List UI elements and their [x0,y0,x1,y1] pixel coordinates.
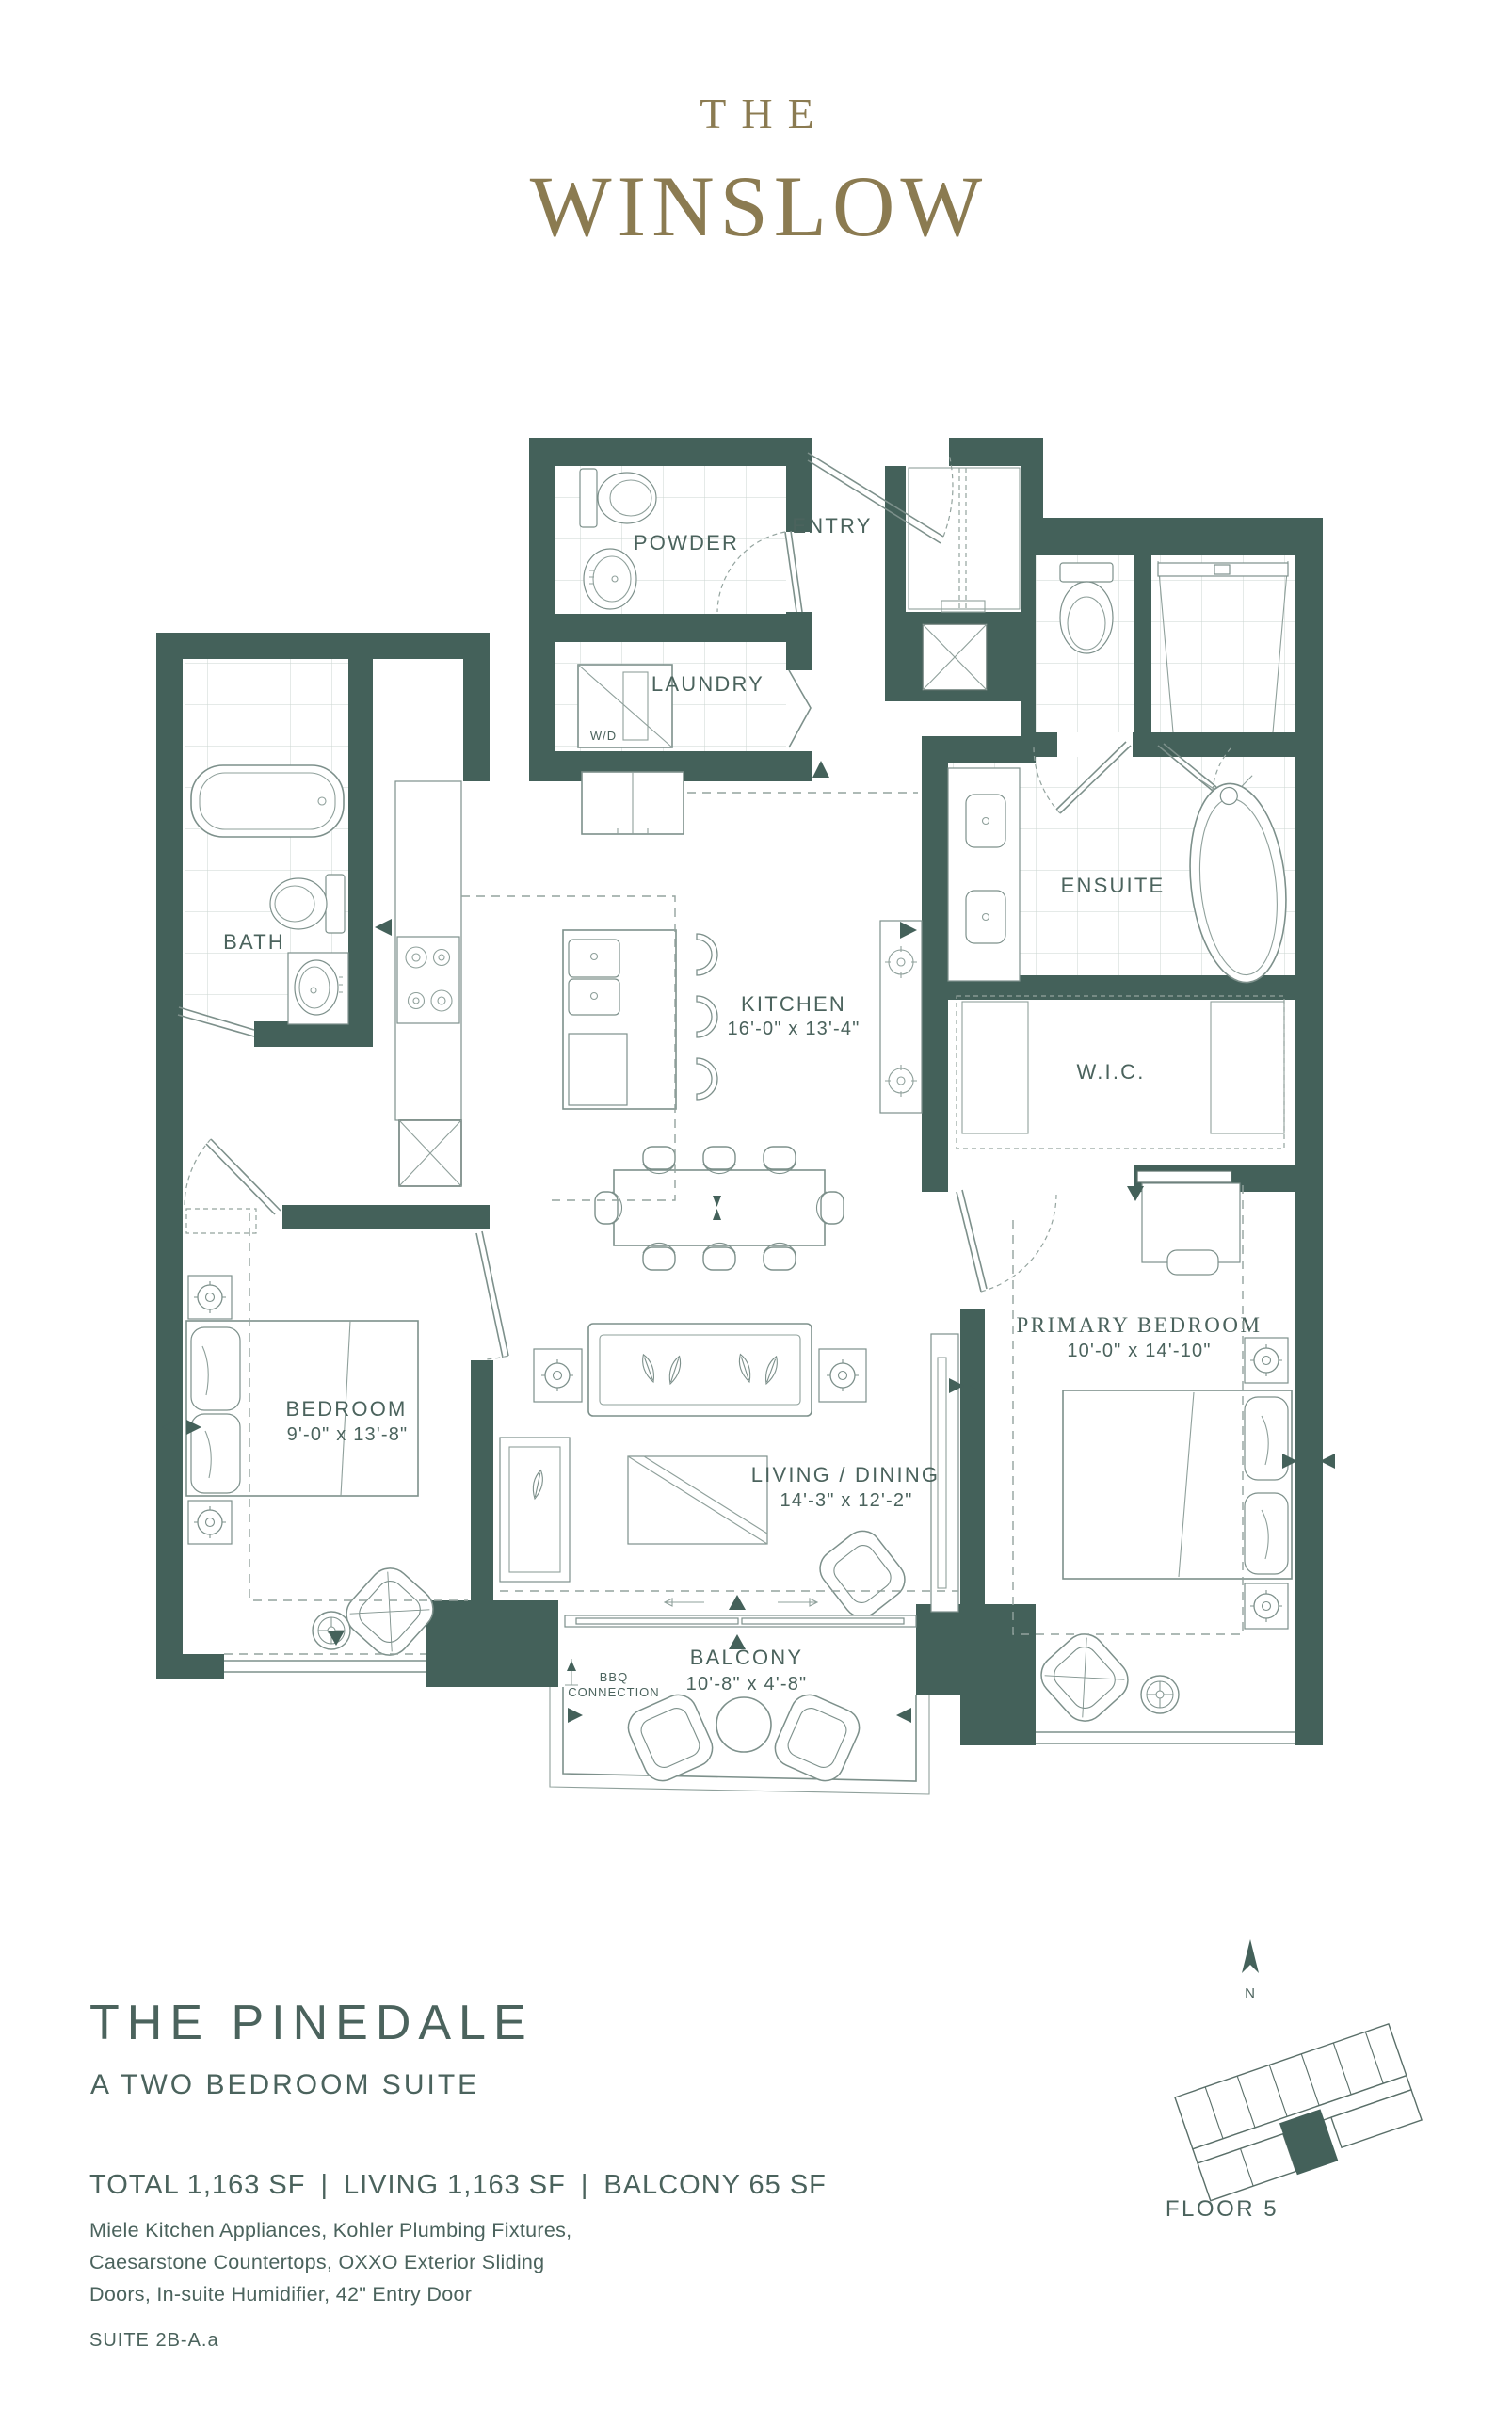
north-label: N [1245,1985,1256,2001]
bath-sink-icon [288,953,348,1024]
dining-chair [595,1192,622,1224]
entry-closet [909,468,1020,612]
primary-label: PRIMARY BEDROOM [1017,1313,1263,1337]
room-primary-bedroom: PRIMARY BEDROOM 10'-0" x 14'-10" [476,1179,1292,1729]
brand-logo: THE WINSLOW [530,89,989,254]
features-line-2: Caesarstone Countertops, OXXO Exterior S… [89,2251,544,2273]
dining-chair [643,1147,675,1174]
wic-slider-panel [1137,1171,1231,1182]
north-arrow: N [1242,1939,1259,2001]
side-table [534,1349,582,1402]
primary-window [1036,1728,1295,1747]
kitchen-label: KITCHEN [741,992,846,1016]
ensuite-toilet-icon [1060,563,1113,653]
wic-closet-right [1211,1002,1284,1133]
primary-bed-icon [1063,1390,1292,1579]
primary-lounge-chair [1033,1626,1136,1729]
laundry-label: LAUNDRY [651,672,764,696]
bedroom-door [185,1139,281,1214]
bedroom2-living-door [476,1231,508,1359]
bedroom-dims: 9'-0" x 13'-8" [287,1424,409,1445]
coffee-table-icon [628,1456,767,1544]
primary-nightstand [1245,1338,1288,1383]
balcony-table [716,1697,771,1752]
suite-areas: TOTAL 1,163 SF|LIVING 1,163 SF|BALCONY 6… [89,2170,827,2200]
suite-name: THE PINEDALE [89,1996,534,2050]
balcony-label: BALCONY [690,1646,804,1669]
balcony-dims: 10'-8" x 4'-8" [686,1674,808,1695]
primary-dims: 10'-0" x 14'-10" [1067,1341,1211,1361]
bar-stool [697,934,717,975]
living-armchair [812,1523,912,1624]
powder-toilet-icon [580,469,656,527]
dining-chair [703,1243,735,1270]
wic-label: W.I.C. [1076,1060,1145,1084]
dining-chair [764,1243,796,1270]
dining-chair [816,1192,844,1224]
kitchen-island [563,930,676,1109]
footer-details: THE PINEDALE A TWO BEDROOM SUITE TOTAL 1… [89,1996,827,2351]
bbq-label-line1: BBQ [600,1670,628,1684]
primary-desk-icon [1142,1183,1240,1275]
powder-label: POWDER [634,531,739,554]
primary-nightstand [1245,1583,1288,1629]
bath-toilet-icon [270,875,345,933]
bar-stool [697,1058,717,1100]
sofa-icon [588,1324,812,1416]
dining-chair [643,1243,675,1270]
bath-label: BATH [223,930,285,954]
fridge-icon [582,772,684,834]
tall-cabinets-icon [880,921,922,1113]
living-dims: 14'-3" x 12'-2" [780,1490,912,1511]
room-kitchen: KITCHEN 16'-0" x 13'-4" [395,772,922,1270]
ensuite-vanity [948,768,1020,981]
bbq-label-line2: CONNECTION [568,1685,659,1699]
washer-dryer-label: W/D [590,729,617,743]
balcony-chair [622,1689,718,1787]
room-balcony: BALCONY 10'-8" x 4'-8" BBQ CONNECTION [550,1646,929,1794]
cooktop-icon [397,937,459,1023]
bbq-connection-note: BBQ CONNECTION [565,1659,660,1699]
side-table [819,1349,866,1402]
brand-prefix: THE [700,89,828,137]
ensuite-label: ENSUITE [1061,874,1166,897]
primary-door [957,1190,1056,1292]
features-line-3: Doors, In-suite Humidifier, 42" Entry Do… [89,2283,472,2306]
bar-stool [697,996,717,1037]
features-line-1: Miele Kitchen Appliances, Kohler Plumbin… [89,2219,571,2241]
bedroom-nightstand [188,1276,232,1319]
living-label: LIVING / DINING [751,1463,940,1486]
floor-label: FLOOR 5 [1166,2196,1279,2222]
entry-shaft-icon [923,624,987,690]
entry-label: ENTRY [792,514,872,538]
kitchen-dims: 16'-0" x 13'-4" [727,1019,860,1039]
bath-tub-icon [191,765,344,837]
bedroom-closet-dash [186,1209,256,1233]
bench-icon [500,1438,570,1582]
wic-closet-left [962,1002,1028,1133]
floorplan-page: THE WINSLOW [0,0,1512,2410]
bedroom-window [224,1657,426,1676]
suite-code: SUITE 2B-A.a [89,2330,219,2351]
kitchen-shaft-icon [399,1120,461,1186]
dining-table [595,1147,844,1270]
dining-chair [703,1147,735,1174]
room-wic: W.I.C. [957,996,1284,1149]
primary-side-table [1141,1676,1179,1713]
laundry-bifold-door [789,670,811,747]
suite-subtitle: A TWO BEDROOM SUITE [90,2069,479,2100]
brand-name: WINSLOW [530,158,989,254]
balcony-chair [769,1689,865,1787]
powder-sink-icon [584,549,636,609]
bedroom-nightstand [188,1501,232,1544]
room-living: LIVING / DINING 14'-3" x 12'-2" [500,1324,958,1627]
bedroom-label: BEDROOM [285,1397,407,1421]
dining-chair [764,1147,796,1174]
keyplan [1175,2024,1425,2205]
